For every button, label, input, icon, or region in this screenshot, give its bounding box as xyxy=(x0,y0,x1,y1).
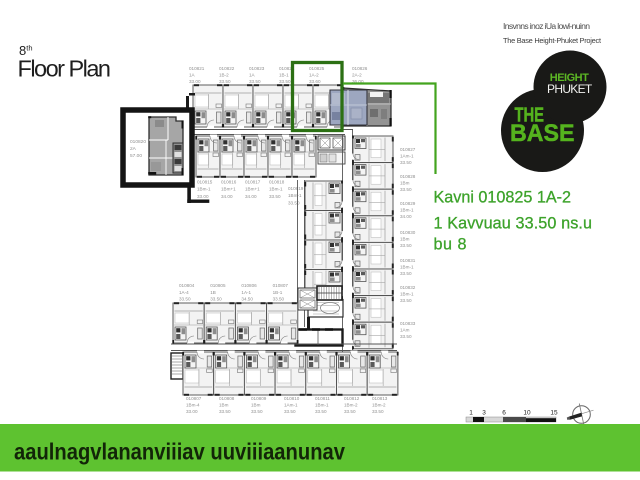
svg-text:1: 1 xyxy=(469,410,473,417)
svg-text:1Am-1: 1Am-1 xyxy=(284,403,298,408)
svg-text:1A-2: 1A-2 xyxy=(309,73,319,78)
svg-text:1A-4: 1A-4 xyxy=(179,290,189,295)
svg-text:1Bm-2: 1Bm-2 xyxy=(344,403,358,408)
svg-text:1B-1: 1B-1 xyxy=(279,73,289,78)
svg-text:33.50: 33.50 xyxy=(315,409,327,414)
svg-text:3: 3 xyxy=(482,410,486,417)
svg-text:1Bm-1: 1Bm-1 xyxy=(315,403,329,408)
svg-text:010833: 010833 xyxy=(400,321,416,326)
svg-text:010810: 010810 xyxy=(284,396,300,401)
svg-text:1Bm-1: 1Bm-1 xyxy=(269,187,283,192)
svg-text:aaulnagvlananviiiav uuviiiaanu: aaulnagvlananviiiav uuviiiaanunav xyxy=(14,439,345,465)
svg-text:2A: 2A xyxy=(130,146,137,152)
svg-text:10: 10 xyxy=(523,410,531,417)
svg-text:PHUKET: PHUKET xyxy=(547,82,593,96)
svg-text:010828: 010828 xyxy=(400,174,416,179)
svg-text:1Bm-1: 1Bm-1 xyxy=(197,187,211,192)
svg-text:010830: 010830 xyxy=(400,230,416,235)
svg-text:1A: 1A xyxy=(249,73,256,78)
svg-text:15: 15 xyxy=(550,410,558,417)
svg-text:010815: 010815 xyxy=(197,180,213,185)
svg-text:010831: 010831 xyxy=(400,258,416,263)
svg-text:010805: 010805 xyxy=(210,283,226,288)
svg-text:010817: 010817 xyxy=(245,180,261,185)
svg-text:010820: 010820 xyxy=(130,139,146,145)
svg-text:BASE: BASE xyxy=(510,120,575,147)
svg-text:010809: 010809 xyxy=(251,396,267,401)
svg-text:33.50: 33.50 xyxy=(400,160,412,165)
svg-text:33.60: 33.60 xyxy=(309,79,321,84)
svg-text:010829: 010829 xyxy=(400,201,416,206)
svg-text:1Bm-4: 1Bm-4 xyxy=(186,403,200,408)
svg-text:33.00: 33.00 xyxy=(186,409,198,414)
svg-text:33.50: 33.50 xyxy=(400,334,412,339)
svg-text:010816: 010816 xyxy=(221,180,237,185)
svg-text:33.50: 33.50 xyxy=(372,409,384,414)
svg-text:1Bm+1: 1Bm+1 xyxy=(245,187,260,192)
svg-text:1 Kavvuau 33.50 ns.u: 1 Kavvuau 33.50 ns.u xyxy=(434,215,593,233)
svg-text:33.50: 33.50 xyxy=(279,79,291,84)
svg-text:33.50: 33.50 xyxy=(210,297,222,302)
svg-text:010819: 010819 xyxy=(288,186,304,191)
svg-text:33.50: 33.50 xyxy=(400,271,412,276)
svg-text:010812: 010812 xyxy=(344,396,360,401)
svg-text:1Bm-1: 1Bm-1 xyxy=(400,265,414,270)
svg-text:1A-1: 1A-1 xyxy=(241,290,251,295)
svg-text:33.00: 33.00 xyxy=(197,194,209,199)
svg-text:1Bm-1: 1Bm-1 xyxy=(400,292,414,297)
svg-text:010823: 010823 xyxy=(249,66,265,71)
svg-text:1Bm-1: 1Bm-1 xyxy=(288,193,302,198)
svg-text:33.50: 33.50 xyxy=(400,298,412,303)
svg-text:010806: 010806 xyxy=(241,283,257,288)
svg-text:34.00: 34.00 xyxy=(221,194,233,199)
svg-text:010827: 010827 xyxy=(400,147,416,152)
svg-text:1Bm: 1Bm xyxy=(219,403,229,408)
svg-text:010804: 010804 xyxy=(179,283,195,288)
svg-text:1Bm: 1Bm xyxy=(251,403,261,408)
svg-text:33.50: 33.50 xyxy=(273,297,285,302)
svg-text:33.50: 33.50 xyxy=(269,194,281,199)
svg-text:010832: 010832 xyxy=(400,285,416,290)
svg-text:010825: 010825 xyxy=(309,66,325,71)
svg-text:010826: 010826 xyxy=(352,66,368,71)
svg-text:33.50: 33.50 xyxy=(288,200,300,205)
svg-text:010818: 010818 xyxy=(269,180,285,185)
svg-text:010811: 010811 xyxy=(315,396,330,401)
svg-text:33.50: 33.50 xyxy=(284,409,296,414)
svg-text:010821: 010821 xyxy=(189,66,205,71)
svg-text:1B-2: 1B-2 xyxy=(219,73,229,78)
svg-text:33.50: 33.50 xyxy=(249,79,261,84)
svg-text:1A: 1A xyxy=(189,73,196,78)
svg-text:bu 8: bu 8 xyxy=(434,236,467,254)
svg-text:33.50: 33.50 xyxy=(400,243,412,248)
svg-text:1B-1: 1B-1 xyxy=(273,290,283,295)
svg-text:1Bm+1: 1Bm+1 xyxy=(221,187,236,192)
svg-text:010813: 010813 xyxy=(372,396,388,401)
svg-text:010808: 010808 xyxy=(219,396,235,401)
svg-text:010807: 010807 xyxy=(273,283,289,288)
svg-text:Kavni 010825 1A-2: Kavni 010825 1A-2 xyxy=(434,189,572,207)
svg-text:1Bm-1: 1Bm-1 xyxy=(400,208,414,213)
svg-text:34.00: 34.00 xyxy=(245,194,257,199)
svg-text:Insvnns inoz iUa lowl-nuinn: Insvnns inoz iUa lowl-nuinn xyxy=(503,21,590,31)
svg-text:33.50: 33.50 xyxy=(251,409,263,414)
svg-text:33.50: 33.50 xyxy=(179,297,191,302)
svg-text:1Bm-2: 1Bm-2 xyxy=(372,403,386,408)
svg-text:6: 6 xyxy=(502,410,506,417)
svg-text:33.00: 33.00 xyxy=(189,79,201,84)
svg-text:33.50: 33.50 xyxy=(400,187,412,192)
svg-text:Floor Plan: Floor Plan xyxy=(18,56,112,82)
svg-text:57.00: 57.00 xyxy=(130,153,142,159)
svg-text:1Bm: 1Bm xyxy=(400,181,410,186)
svg-text:The Base Height-Phuket Project: The Base Height-Phuket Project xyxy=(503,36,601,45)
svg-text:1Bm: 1Bm xyxy=(400,237,410,242)
svg-text:010822: 010822 xyxy=(219,66,235,71)
svg-text:1Am-1: 1Am-1 xyxy=(400,154,414,159)
svg-text:1Am: 1Am xyxy=(400,328,410,333)
svg-text:34.50: 34.50 xyxy=(241,297,253,302)
svg-text:2A-2: 2A-2 xyxy=(352,73,362,78)
svg-text:34.00: 34.00 xyxy=(400,214,412,219)
svg-text:33.50: 33.50 xyxy=(219,409,231,414)
svg-text:010807: 010807 xyxy=(186,396,202,401)
svg-text:1B: 1B xyxy=(210,290,216,295)
svg-text:33.50: 33.50 xyxy=(344,409,356,414)
svg-text:33.50: 33.50 xyxy=(219,79,231,84)
